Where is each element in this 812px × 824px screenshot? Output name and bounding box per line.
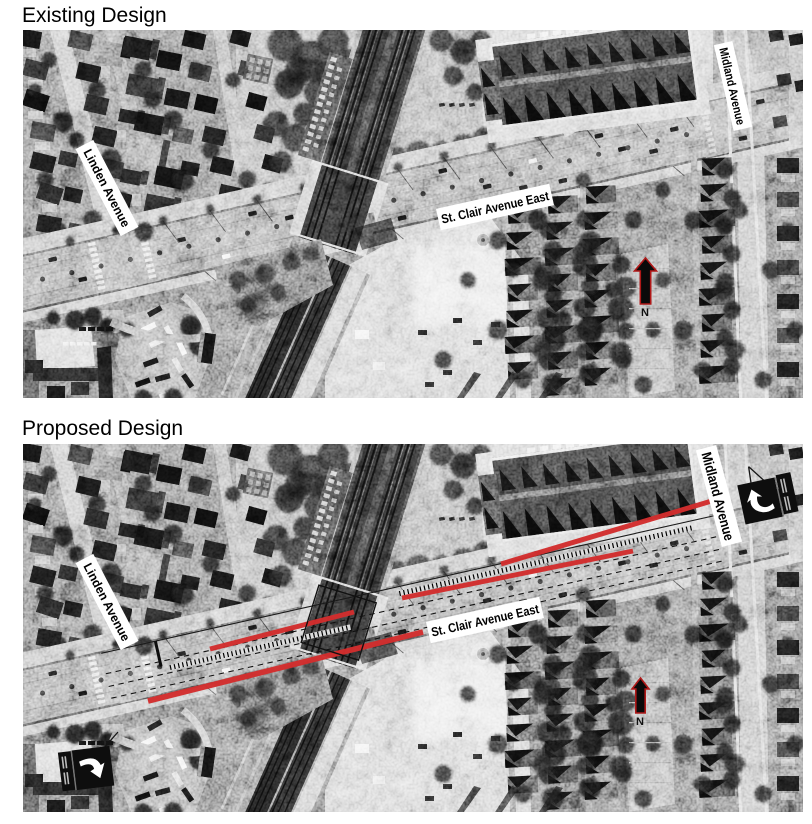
svg-text:N: N (636, 716, 644, 728)
svg-text:N: N (641, 307, 649, 319)
